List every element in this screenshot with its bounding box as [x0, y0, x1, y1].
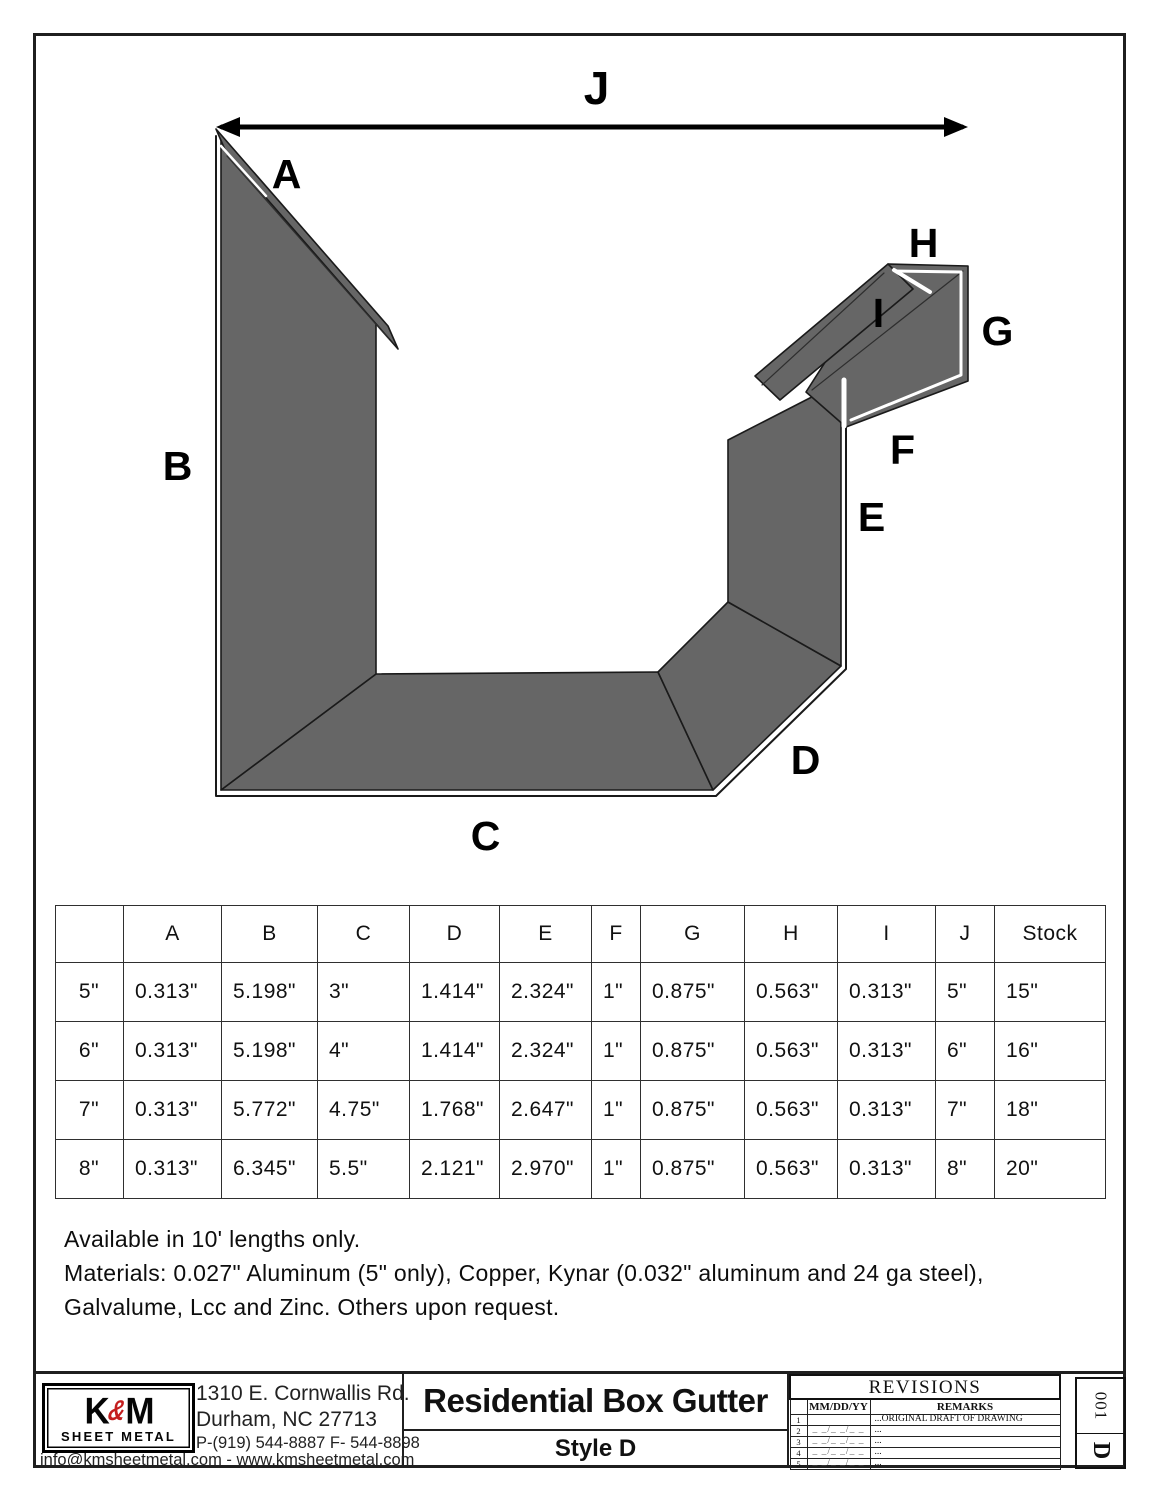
note-line: Available in 10' lengths only. — [64, 1222, 984, 1256]
drawing-title: Residential Box Gutter — [404, 1372, 787, 1429]
cell: 0.313" — [838, 1140, 936, 1199]
col-header-f: F — [592, 906, 641, 963]
rev-num: 4 — [790, 1448, 807, 1459]
label-i: I — [873, 290, 885, 336]
rev-date-header: MM/DD/YY — [807, 1399, 870, 1415]
cell: 2.121" — [410, 1140, 500, 1199]
cell: 6.345" — [222, 1140, 318, 1199]
cell: 1" — [592, 1140, 641, 1199]
cell: 1.414" — [410, 963, 500, 1022]
sheet-number-cell: 001 — [1077, 1379, 1124, 1434]
rev-remarks: ... — [870, 1459, 1060, 1470]
rev-num: 3 — [790, 1437, 807, 1448]
cell: 3" — [318, 963, 410, 1022]
label-g: G — [982, 308, 1015, 354]
drawing-style: Style D — [404, 1431, 787, 1466]
address-line-1: 1310 E. Cornwallis Rd. — [196, 1381, 420, 1407]
note-line: Galvalume, Lcc and Zinc. Others upon req… — [64, 1290, 984, 1324]
cell: 0.875" — [641, 963, 745, 1022]
logo-letters: K & M — [84, 1395, 152, 1429]
rev-date: _ _/_ _/_ _ — [807, 1459, 870, 1470]
table-row: 8" 0.313" 6.345" 5.5" 2.121" 2.970" 1" 0… — [56, 1140, 1106, 1199]
revision-row: 4 _ _/_ _/_ _ ... — [790, 1448, 1060, 1459]
cell: 0.313" — [124, 1140, 222, 1199]
col-header-c: C — [318, 906, 410, 963]
cell: 15" — [995, 963, 1106, 1022]
col-header-stock: Stock — [995, 906, 1106, 963]
rev-num-header — [790, 1399, 807, 1415]
cell: 20" — [995, 1140, 1106, 1199]
cell: 1.414" — [410, 1022, 500, 1081]
gutter-profile-diagram: J A B C D E F G H I — [0, 0, 1159, 880]
label-d: D — [791, 737, 822, 783]
cell: 1" — [592, 963, 641, 1022]
label-e: E — [858, 494, 886, 540]
company-address: 1310 E. Cornwallis Rd. Durham, NC 27713 … — [196, 1381, 420, 1454]
cell: 0.563" — [745, 1140, 838, 1199]
cell: 0.875" — [641, 1140, 745, 1199]
row-size: 6" — [56, 1022, 124, 1081]
cell: 18" — [995, 1081, 1106, 1140]
sheet-number: 001 — [1091, 1392, 1111, 1421]
rev-num: 2 — [790, 1426, 807, 1437]
label-j: J — [584, 62, 611, 114]
revisions-table: REVISIONS MM/DD/YY REMARKS 1 ...ORIGINAL… — [789, 1374, 1061, 1470]
col-header-e: E — [500, 906, 592, 963]
cell: 8" — [936, 1140, 995, 1199]
cell: 2.970" — [500, 1140, 592, 1199]
cell: 0.563" — [745, 963, 838, 1022]
dimension-table: A B C D E F G H I J Stock 5" 0.313" 5.19… — [55, 905, 1106, 1199]
col-header-j: J — [936, 906, 995, 963]
col-header-b: B — [222, 906, 318, 963]
rev-remarks: ...ORIGINAL DRAFT OF DRAWING — [870, 1415, 1060, 1426]
rev-remarks: ... — [870, 1426, 1060, 1437]
rev-remarks-header: REMARKS — [870, 1399, 1060, 1415]
label-f: F — [890, 427, 916, 473]
cell: 2.324" — [500, 963, 592, 1022]
logo-letter-k: K — [84, 1396, 107, 1428]
revisions-header: REVISIONS — [790, 1375, 1060, 1399]
cell: 1" — [592, 1022, 641, 1081]
revision-row: 2 _ _/_ _/_ _ ... — [790, 1426, 1060, 1437]
cell: 4" — [318, 1022, 410, 1081]
rev-num: 1 — [790, 1415, 807, 1426]
cell: 0.313" — [838, 1081, 936, 1140]
row-size: 5" — [56, 963, 124, 1022]
cell: 0.313" — [838, 1022, 936, 1081]
revision-row: 3 _ _/_ _/_ _ ... — [790, 1437, 1060, 1448]
rev-date: _ _/_ _/_ _ — [807, 1437, 870, 1448]
table-row: 6" 0.313" 5.198" 4" 1.414" 2.324" 1" 0.8… — [56, 1022, 1106, 1081]
cell: 1.768" — [410, 1081, 500, 1140]
col-header-h: H — [745, 906, 838, 963]
row-size: 8" — [56, 1140, 124, 1199]
cell: 0.875" — [641, 1022, 745, 1081]
revisions-col-header-row: MM/DD/YY REMARKS — [790, 1399, 1060, 1415]
rev-remarks: ... — [870, 1437, 1060, 1448]
cell: 0.313" — [124, 1081, 222, 1140]
table-row: 7" 0.313" 5.772" 4.75" 1.768" 2.647" 1" … — [56, 1081, 1106, 1140]
cell: 1" — [592, 1081, 641, 1140]
label-b: B — [163, 443, 194, 489]
table-header-row: A B C D E F G H I J Stock — [56, 906, 1106, 963]
col-header-size — [56, 906, 124, 963]
company-logo: K & M SHEET METAL — [42, 1383, 195, 1453]
rev-date — [807, 1415, 870, 1426]
address-line-2: Durham, NC 27713 — [196, 1407, 420, 1433]
label-c: C — [471, 813, 502, 859]
cell: 2.647" — [500, 1081, 592, 1140]
label-h: H — [909, 220, 940, 266]
email-web-line: info@kmsheetmetal.com - www.kmsheetmetal… — [40, 1451, 414, 1470]
cell: 4.75" — [318, 1081, 410, 1140]
cell: 0.313" — [124, 963, 222, 1022]
arrowhead-right-icon — [944, 117, 968, 137]
cell: 5" — [936, 963, 995, 1022]
drawing-sheet: J A B C D E F G H I A B C D E F — [0, 0, 1159, 1500]
cell: 5.772" — [222, 1081, 318, 1140]
col-header-i: I — [838, 906, 936, 963]
sheet-letter-cell: D — [1077, 1434, 1124, 1467]
rev-date: _ _/_ _/_ _ — [807, 1448, 870, 1459]
col-header-g: G — [641, 906, 745, 963]
cell: 0.313" — [124, 1022, 222, 1081]
notes-block: Available in 10' lengths only. Materials… — [64, 1222, 984, 1324]
label-a: A — [272, 151, 303, 197]
cell: 0.875" — [641, 1081, 745, 1140]
sheet-letter: D — [1087, 1442, 1114, 1459]
cell: 5.5" — [318, 1140, 410, 1199]
cell: 16" — [995, 1022, 1106, 1081]
cell: 0.313" — [838, 963, 936, 1022]
cell: 5.198" — [222, 963, 318, 1022]
rev-remarks: ... — [870, 1448, 1060, 1459]
col-header-a: A — [124, 906, 222, 963]
logo-letter-m: M — [125, 1396, 152, 1428]
rev-date: _ _/_ _/_ _ — [807, 1426, 870, 1437]
table-row: 5" 0.313" 5.198" 3" 1.414" 2.324" 1" 0.8… — [56, 963, 1106, 1022]
sheet-id-box: 001 D — [1075, 1377, 1126, 1469]
row-size: 7" — [56, 1081, 124, 1140]
logo-subtitle: SHEET METAL — [61, 1429, 176, 1444]
note-line: Materials: 0.027" Aluminum (5" only), Co… — [64, 1256, 984, 1290]
cell: 0.563" — [745, 1022, 838, 1081]
col-header-d: D — [410, 906, 500, 963]
revision-row: 1 ...ORIGINAL DRAFT OF DRAWING — [790, 1415, 1060, 1426]
cell: 0.563" — [745, 1081, 838, 1140]
revision-row: 5 _ _/_ _/_ _ ... — [790, 1459, 1060, 1470]
cell: 2.324" — [500, 1022, 592, 1081]
rev-num: 5 — [790, 1459, 807, 1470]
cell: 5.198" — [222, 1022, 318, 1081]
cell: 7" — [936, 1081, 995, 1140]
cell: 6" — [936, 1022, 995, 1081]
